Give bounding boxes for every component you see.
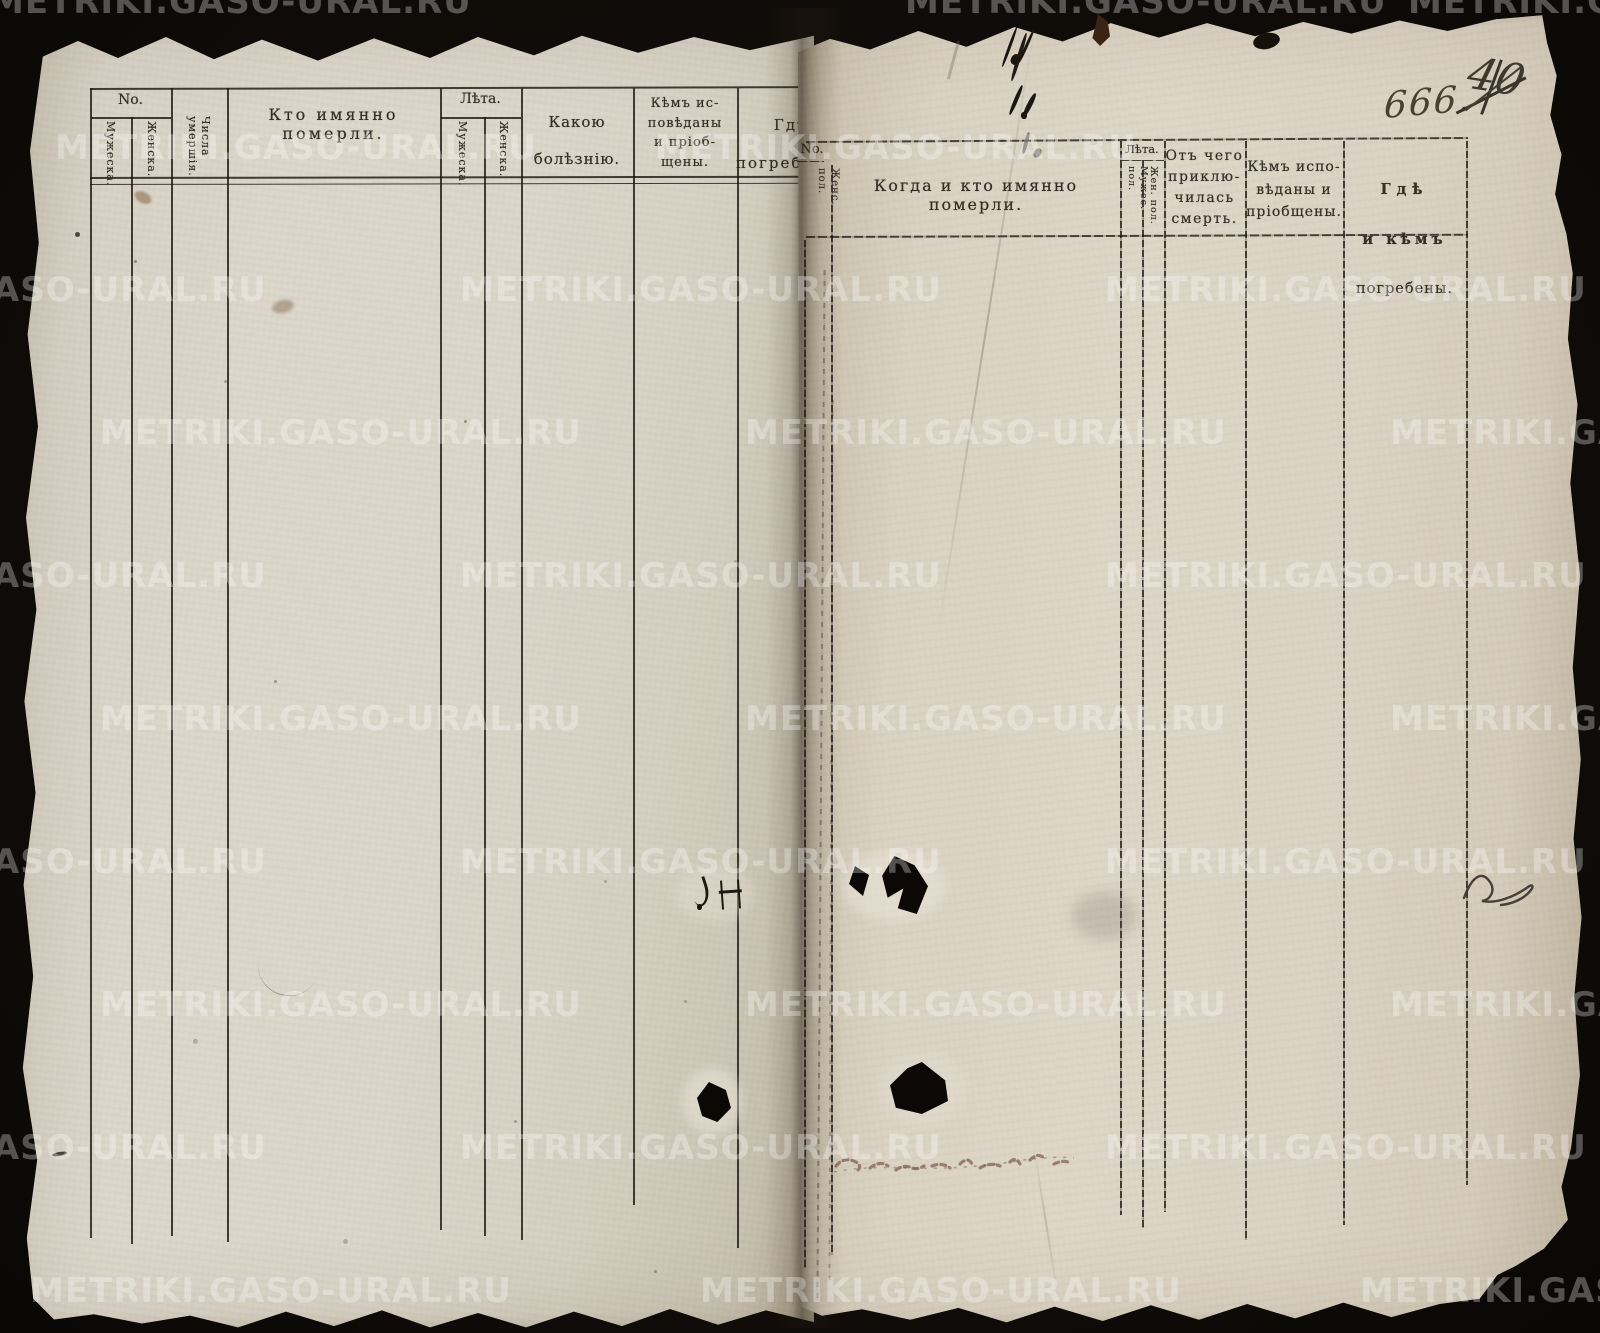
right-page	[798, 10, 1600, 1325]
paper-speckles	[134, 260, 137, 263]
watermark-text: METRIKI.GASO-URAL.RU	[905, 0, 1387, 22]
watermark-text: METRIKI.GASO-URAL.RU	[0, 0, 472, 22]
scanned-register-spread: No. Мужеска. Женска. Числа умершія. Кто …	[0, 0, 1600, 1333]
left-page	[14, 20, 814, 1330]
